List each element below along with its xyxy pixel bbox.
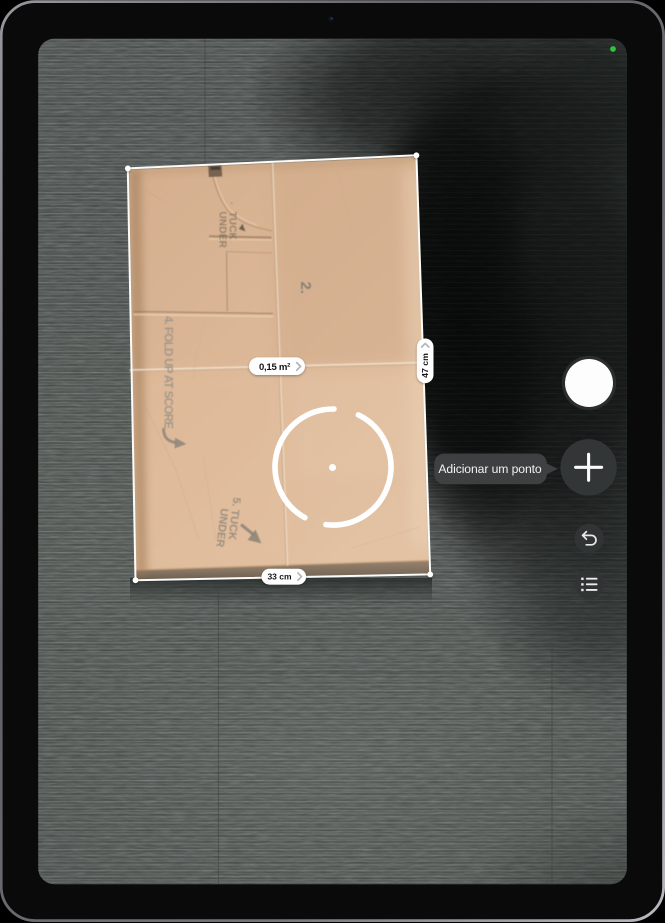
svg-text:0,15 m²: 0,15 m² <box>259 362 290 373</box>
svg-text:2.: 2. <box>297 282 314 295</box>
svg-text:33 cm: 33 cm <box>267 572 292 582</box>
svg-text:4. FOLD UP AT SCORE: 4. FOLD UP AT SCORE <box>162 316 174 429</box>
svg-text:UNDER: UNDER <box>217 212 228 249</box>
svg-text:Adicionar um ponto: Adicionar um ponto <box>438 462 542 476</box>
svg-text:.: . <box>229 202 239 205</box>
svg-text:47 cm: 47 cm <box>420 353 430 378</box>
